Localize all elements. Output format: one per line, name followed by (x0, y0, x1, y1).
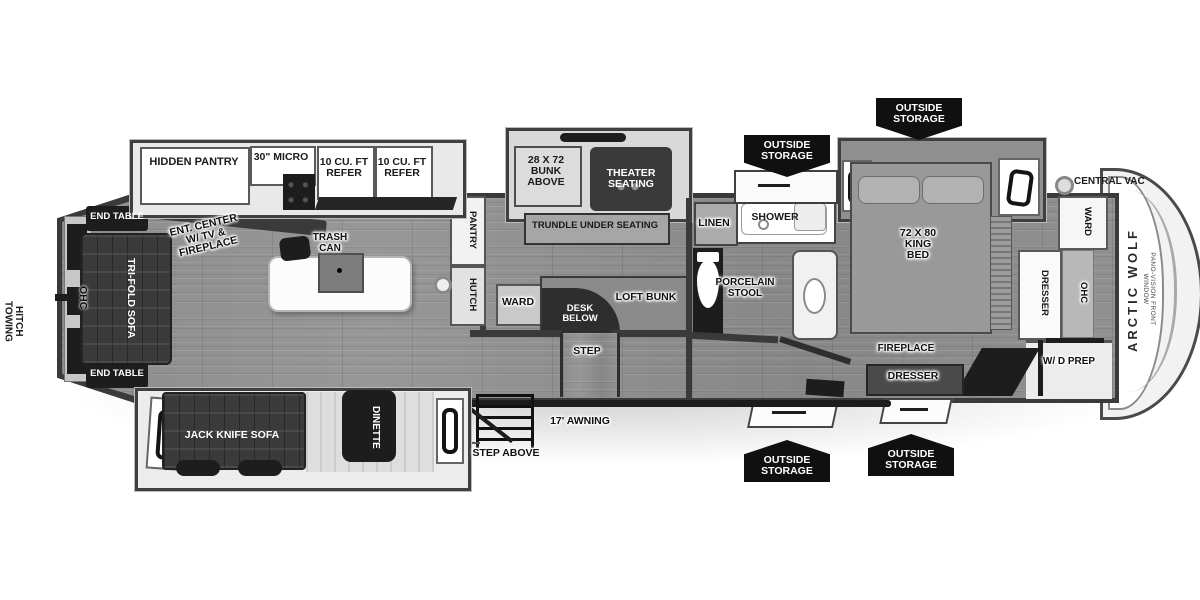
outside-storage-label: OUTSIDE STORAGE (876, 103, 962, 125)
loft-bunk-label: LOFT BUNK (608, 292, 684, 303)
awning-label: 17' AWNING (538, 416, 622, 427)
island-sink-drain (337, 268, 342, 273)
bottom-dresser-label: DRESSER (868, 371, 958, 382)
fireplace-label: FIREPLACE (866, 344, 946, 355)
porcelain-stool-label: PORCELAIN STOOL (714, 278, 776, 299)
toilet-tank (697, 252, 719, 262)
bedroom-window-right (998, 158, 1040, 216)
outside-storage-badge-top-right: OUTSIDE STORAGE (876, 98, 962, 140)
bedroom-ward-label: WARD (1070, 202, 1092, 242)
bedroom-window-right-frame (1006, 169, 1035, 208)
shower-label: SHOWER (742, 212, 808, 223)
trundle-label: TRUNDLE UNDER SEATING (524, 221, 666, 231)
island-sink (318, 253, 364, 293)
top-compartment-handle (758, 184, 790, 187)
trash-can-label: TRASH CAN (300, 233, 360, 254)
bunkroom-wall-left (470, 330, 562, 337)
central-vac-outlet (1055, 176, 1074, 195)
cooktop (283, 174, 315, 210)
end-table-top-label: END TABLE (88, 212, 146, 222)
floorplan-canvas: OUTSIDE STORAGE OUTSIDE STORAGE OUTSIDE … (0, 0, 1200, 600)
desk-below-label: DESK BELOW (552, 304, 608, 324)
bed-pillow-right (922, 176, 984, 204)
outside-storage-label: OUTSIDE STORAGE (868, 449, 954, 471)
step-above-label: STEP ABOVE (468, 448, 544, 459)
step-label: STEP (564, 346, 610, 357)
theater-seating-label: THEATER SEATING (592, 168, 670, 190)
micro-label: 30" MICRO (250, 152, 312, 163)
end-table-bottom-label: END TABLE (88, 369, 146, 379)
hutch-label: HUTCH (455, 270, 477, 320)
bunk-slide-vent (560, 133, 626, 142)
bottom-compartment-right-handle (900, 408, 928, 411)
jack-knife-sofa-label: JACK KNIFE SOFA (164, 430, 300, 441)
outside-storage-label: OUTSIDE STORAGE (744, 455, 830, 477)
pantry-label: PANTRY (455, 200, 477, 260)
dinette-slide-window-right-frame (442, 408, 458, 454)
tri-fold-sofa-label: TRI-FOLD SOFA (112, 248, 136, 348)
bottom-compartment-left-handle (772, 411, 806, 414)
linen-label: LINEN (690, 218, 738, 229)
rear-ohc-label: OHC (66, 268, 88, 328)
bed-steps (990, 216, 1012, 330)
brand-vertical: ARCTIC WOLF (1126, 220, 1142, 360)
bottom-wall-cabinet (805, 379, 844, 398)
step-corridor (560, 333, 620, 397)
towing-hitch-label: TOWING HITCH (2, 288, 23, 354)
refer-right-label: 10 CU. FT REFER (376, 157, 428, 179)
front-window-label: PANO-VISION FRONT WINDOW (1145, 237, 1155, 341)
bunkroom-wall-right (612, 330, 690, 337)
central-vac-label: CENTRAL VAC (1074, 177, 1148, 188)
bedroom-ohc-label: OHC (1066, 270, 1088, 316)
bed-pillow-left (858, 176, 920, 204)
outside-storage-label: OUTSIDE STORAGE (744, 140, 830, 162)
dinette-slide-window-right (436, 398, 464, 464)
hidden-pantry-label: HIDDEN PANTRY (142, 157, 246, 169)
sofa-cushion-left (176, 460, 220, 476)
kitchen-counter (315, 197, 457, 210)
wall-sconce (434, 276, 452, 294)
king-bed-label: 72 X 80 KING BED (868, 228, 968, 261)
refer-left-label: 10 CU. FT REFER (318, 157, 370, 179)
bunk-ward-label: WARD (496, 297, 540, 308)
bedroom-dresser-side-label: DRESSER (1027, 258, 1049, 328)
bunk-above-label: 28 X 72 BUNK ABOVE (515, 155, 577, 188)
dinette-label: DINETTE (358, 398, 380, 456)
wd-prep-label: W/ D PREP (1032, 357, 1106, 368)
vanity-sink (803, 278, 826, 314)
wd-prep-shelf (1046, 338, 1104, 343)
sofa-cushion-right (238, 460, 282, 476)
